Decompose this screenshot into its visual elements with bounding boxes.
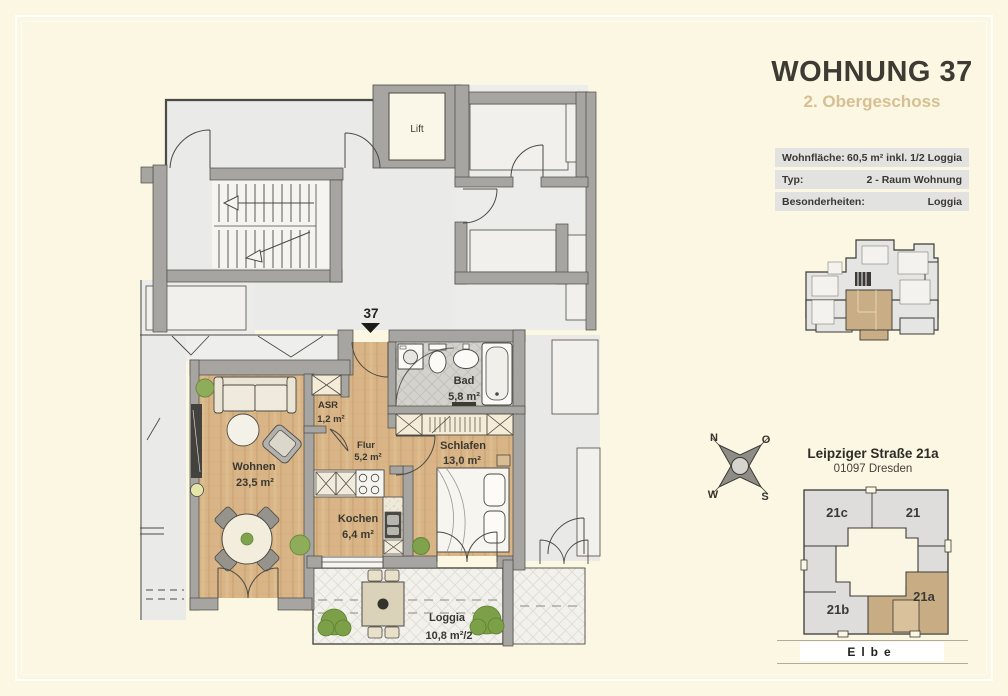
table-plant-icon: [378, 599, 389, 610]
nightstand-icon: [497, 455, 510, 466]
site-plan: 21c 21 21b 21a: [795, 483, 955, 638]
bed-icon: [437, 468, 509, 552]
staircase: [212, 180, 330, 268]
plant-icon: [413, 538, 430, 555]
area-kochen: 6,4 m²: [342, 529, 374, 541]
area-asr: 1,2 m²: [317, 414, 344, 425]
toilet-icon: [429, 344, 446, 373]
kitchen-sink-icon: [385, 512, 401, 538]
info-value: 2 - Raum Wohnung: [867, 174, 962, 186]
compass-north: N: [710, 432, 718, 444]
river-line-top: [777, 640, 968, 641]
info-table: Wohnfläche: 60,5 m² inkl. 1/2 Loggia Typ…: [775, 148, 969, 214]
floor-overview-miniplan: [798, 228, 948, 346]
area-wohnen: 23,5 m²: [236, 477, 274, 489]
site-label-21c: 21c: [826, 505, 848, 520]
label-bad: Bad: [454, 375, 475, 387]
label-kochen: Kochen: [338, 513, 379, 525]
floor-plan: Lift: [130, 75, 610, 665]
sofa-icon: [214, 377, 296, 413]
coffee-table-icon: [227, 414, 259, 446]
page-title: WOHNUNG 37: [770, 56, 974, 89]
miniplan-stairs: [855, 272, 871, 286]
miniplan-highlighted-unit: [846, 290, 892, 340]
tv-board-icon: [191, 404, 202, 478]
info-row-wohnflaeche: Wohnfläche: 60,5 m² inkl. 1/2 Loggia: [775, 148, 969, 167]
compass-south: S: [761, 491, 768, 503]
address-street: Leipziger Straße 21a: [788, 446, 958, 461]
label-schlafen: Schlafen: [440, 440, 486, 452]
floorplan-page: Lift: [0, 0, 1008, 696]
address-block: Leipziger Straße 21a 01097 Dresden: [788, 446, 958, 475]
svg-text:37: 37: [363, 306, 378, 321]
label-loggia: Loggia: [429, 612, 466, 624]
address-city: 01097 Dresden: [788, 463, 958, 475]
lift: Lift: [373, 85, 461, 168]
info-row-besonderheiten: Besonderheiten: Loggia: [775, 192, 969, 211]
small-plant-icon: [191, 484, 204, 497]
label-asr: ASR: [318, 400, 338, 411]
info-label: Besonderheiten:: [782, 196, 865, 208]
compass-rose-icon: N O S W: [700, 424, 780, 506]
asr-cabinet: [312, 375, 341, 395]
site-label-21: 21: [906, 505, 920, 520]
page-subtitle: 2. Obergeschoss: [770, 92, 974, 112]
info-label: Wohnfläche:: [782, 152, 845, 164]
compass-east: O: [762, 434, 771, 446]
bathtub-icon: [482, 343, 512, 405]
info-value: 60,5 m² inkl. 1/2 Loggia: [847, 152, 962, 164]
river-label: Elbe: [800, 642, 944, 661]
site-label-21b: 21b: [827, 602, 849, 617]
label-wohnen: Wohnen: [232, 461, 275, 473]
river-line-bottom: [777, 663, 968, 664]
label-flur: Flur: [357, 440, 375, 451]
site-label-21a: 21a: [913, 589, 935, 604]
info-value: Loggia: [928, 196, 962, 208]
area-flur: 5,2 m²: [354, 452, 381, 463]
lift-label: Lift: [410, 124, 424, 135]
compass-west: W: [708, 489, 719, 501]
area-schlafen: 13,0 m²: [443, 455, 481, 467]
area-loggia: 10,8 m²/2: [425, 630, 472, 642]
stove-icon: [356, 470, 384, 497]
washing-machine-icon: [398, 344, 423, 369]
info-label: Typ:: [782, 174, 803, 186]
plant-icon: [196, 379, 214, 397]
info-row-typ: Typ: 2 - Raum Wohnung: [775, 170, 969, 189]
plant-icon: [290, 535, 310, 555]
wardrobe: [396, 414, 513, 435]
area-bad: 5,8 m²: [448, 391, 480, 403]
